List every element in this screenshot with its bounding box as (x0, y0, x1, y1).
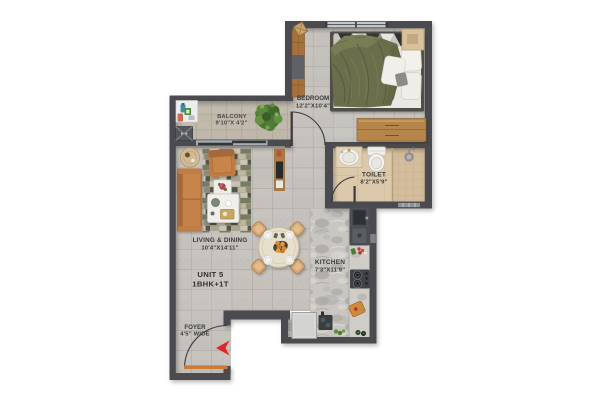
svg-text:FOYER: FOYER (184, 324, 206, 331)
svg-text:BALCONY: BALCONY (217, 114, 247, 120)
svg-text:BEDROOM: BEDROOM (297, 95, 329, 102)
svg-text:7'3"X11'9": 7'3"X11'9" (315, 268, 345, 274)
svg-text:TOILET: TOILET (362, 172, 386, 179)
svg-text:4'5" WIDE: 4'5" WIDE (180, 332, 210, 338)
svg-text:9'10"X 4'2": 9'10"X 4'2" (215, 121, 247, 127)
svg-text:10'4"X14'11": 10'4"X14'11" (201, 246, 238, 252)
svg-text:12'2"X10'4": 12'2"X10'4" (296, 104, 330, 110)
svg-text:UNIT 5: UNIT 5 (197, 270, 224, 279)
svg-text:8'2"X5'9": 8'2"X5'9" (360, 180, 387, 186)
svg-text:KITCHEN: KITCHEN (315, 259, 345, 266)
svg-text:1BHK+1T: 1BHK+1T (192, 280, 229, 289)
svg-text:LIVING & DINING: LIVING & DINING (193, 237, 248, 244)
